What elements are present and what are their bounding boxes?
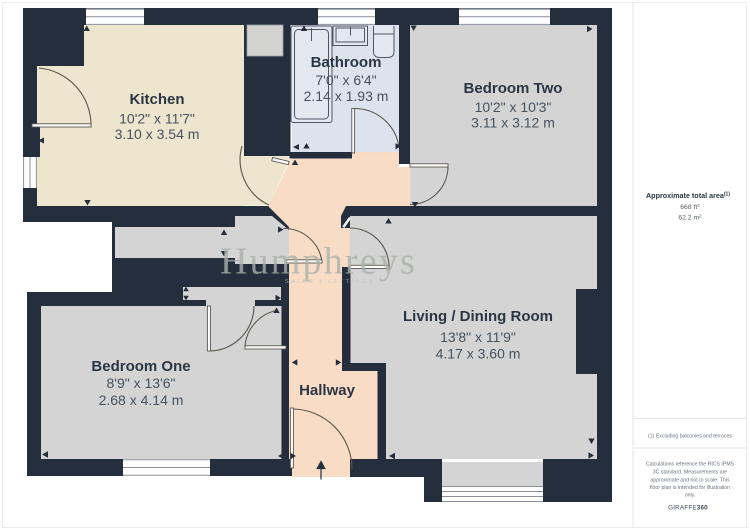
svg-text:3.11 x 3.12 m: 3.11 x 3.12 m bbox=[471, 115, 555, 131]
svg-text:Bathroom: Bathroom bbox=[311, 54, 382, 71]
svg-text:10'2" x 10'3": 10'2" x 10'3" bbox=[475, 99, 552, 115]
svg-text:Approximate total area(1): Approximate total area(1) bbox=[646, 191, 730, 200]
svg-text:only.: only. bbox=[685, 493, 696, 499]
svg-text:4.17 x 3.60 m: 4.17 x 3.60 m bbox=[436, 346, 521, 362]
svg-text:Kitchen: Kitchen bbox=[129, 91, 184, 108]
svg-text:Bedroom One: Bedroom One bbox=[91, 358, 190, 375]
svg-text:approximate and not to scale.: approximate and not to scale. This bbox=[650, 478, 730, 484]
svg-text:Bedroom Two: Bedroom Two bbox=[464, 80, 563, 97]
svg-text:3C standard. Measurements are: 3C standard. Measurements are bbox=[653, 470, 728, 476]
svg-text:8'9" x 13'6": 8'9" x 13'6" bbox=[107, 375, 176, 391]
svg-text:GIRAFFE360: GIRAFFE360 bbox=[668, 505, 708, 512]
svg-text:2.68 x 4.14 m: 2.68 x 4.14 m bbox=[99, 392, 184, 408]
svg-text:3.10 x 3.54 m: 3.10 x 3.54 m bbox=[115, 126, 200, 142]
svg-text:7'0" x 6'4": 7'0" x 6'4" bbox=[315, 72, 376, 88]
svg-text:(1) Excluding balconies and te: (1) Excluding balconies and terraces bbox=[648, 434, 732, 440]
svg-text:Humphreys: Humphreys bbox=[220, 241, 417, 283]
svg-text:13'8" x 11'9": 13'8" x 11'9" bbox=[440, 329, 516, 345]
svg-text:floor plan is intended for ill: floor plan is intended for illustration bbox=[650, 485, 730, 491]
svg-text:10'2" x 11'7": 10'2" x 11'7" bbox=[119, 111, 195, 127]
svg-text:Living / Dining Room: Living / Dining Room bbox=[403, 308, 553, 325]
svg-text:2.14 x 1.93 m: 2.14 x 1.93 m bbox=[304, 88, 389, 104]
svg-text:62.2 m2: 62.2 m2 bbox=[678, 214, 702, 222]
svg-text:Calculations reference the RIC: Calculations reference the RICS IPMS bbox=[646, 462, 735, 468]
svg-text:Hallway: Hallway bbox=[299, 382, 356, 399]
svg-text:668 ft2: 668 ft2 bbox=[680, 203, 700, 211]
svg-text:SALES ‖ LETTINGS: SALES ‖ LETTINGS bbox=[285, 279, 375, 285]
